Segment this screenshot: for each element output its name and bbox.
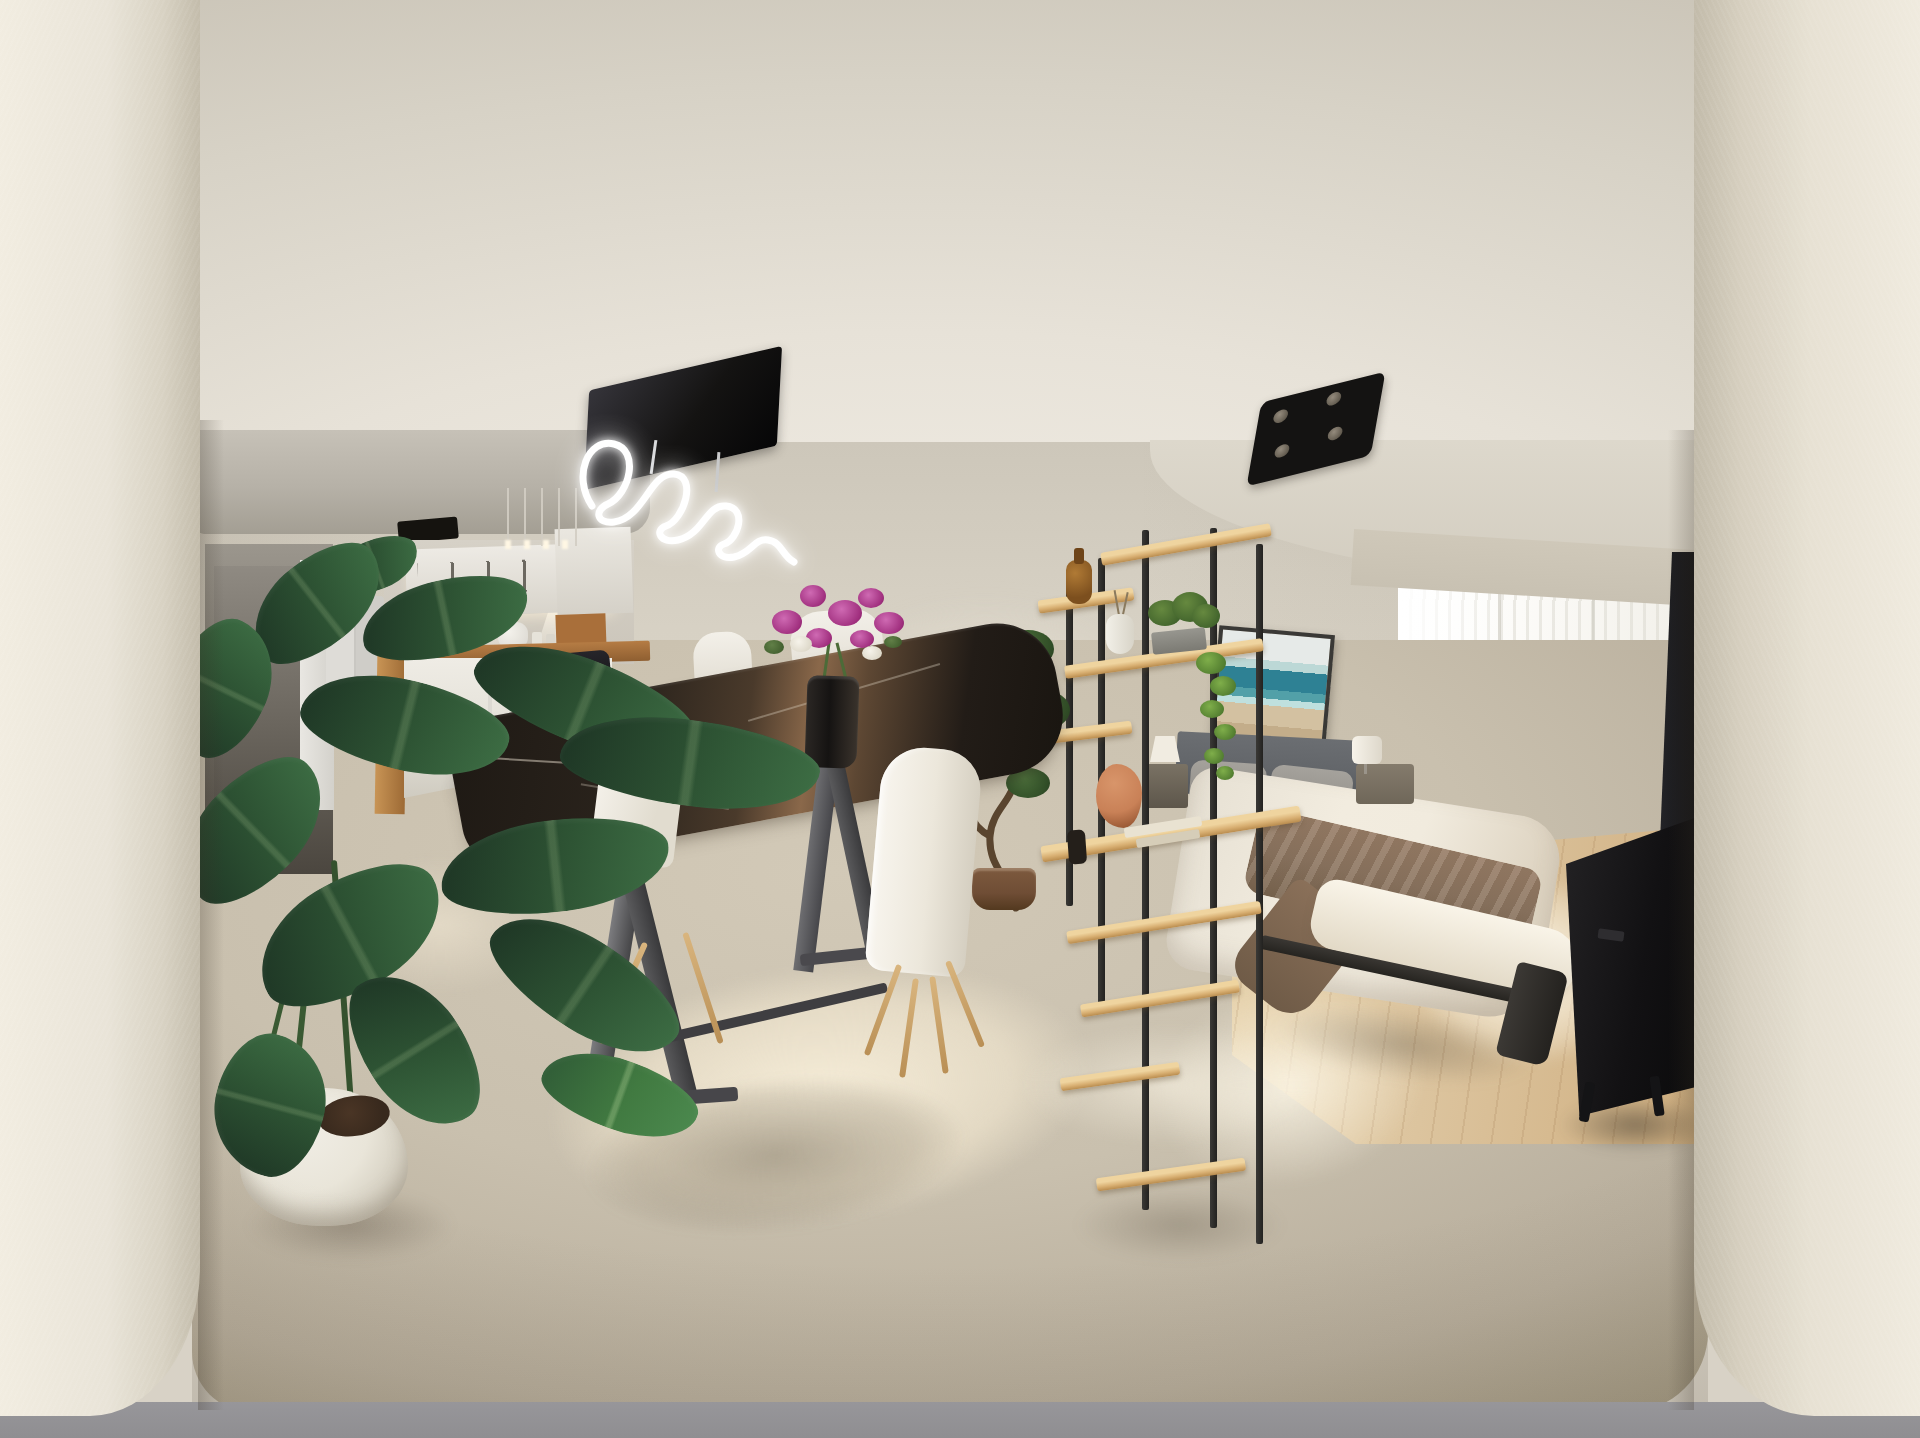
- shelf-post: [1142, 530, 1149, 1210]
- trailing-ivy: [1196, 652, 1226, 674]
- spot-bulb: [1274, 443, 1291, 460]
- white-flower: [862, 646, 882, 660]
- pillar-shadow-seam: [1668, 430, 1694, 1410]
- spot-bulb: [1327, 425, 1344, 442]
- shelf-post: [1210, 528, 1217, 1228]
- magenta-flower: [874, 612, 904, 634]
- right-pillar: [1694, 0, 1920, 1416]
- trailing-ivy: [1204, 748, 1224, 764]
- amber-bottle: [1066, 560, 1092, 604]
- flower-leaf: [764, 640, 784, 654]
- white-vase: [1106, 614, 1134, 654]
- trailing-ivy: [1210, 676, 1236, 696]
- flower-vase: [804, 675, 859, 769]
- trailing-ivy: [1214, 724, 1236, 740]
- spot-bulb: [1325, 391, 1342, 408]
- amber-bottle-neck: [1074, 548, 1084, 564]
- shelf-plant-foliage: [1192, 604, 1220, 628]
- left-pillar: [0, 0, 200, 1416]
- magenta-flower: [828, 600, 862, 626]
- coral-decor: [1096, 764, 1142, 828]
- magenta-flower: [772, 610, 802, 634]
- table-lamp-right: [1352, 736, 1382, 764]
- shelf-shadow: [1050, 1180, 1310, 1270]
- base-band: [0, 1402, 1920, 1438]
- trailing-ivy: [1216, 766, 1234, 780]
- panorama-viewport[interactable]: [0, 0, 1920, 1438]
- white-flower: [790, 636, 812, 652]
- dining-chair: [864, 744, 983, 978]
- magenta-flower: [858, 588, 884, 608]
- nightstand-left: [1146, 764, 1188, 808]
- flower-leaf: [884, 636, 902, 648]
- bonsai-pot: [972, 868, 1036, 910]
- trailing-ivy: [1200, 700, 1224, 718]
- spot-bulb: [1272, 408, 1289, 425]
- pillar-shadow-seam: [198, 420, 224, 1410]
- neon-scribble-tube: [566, 420, 806, 590]
